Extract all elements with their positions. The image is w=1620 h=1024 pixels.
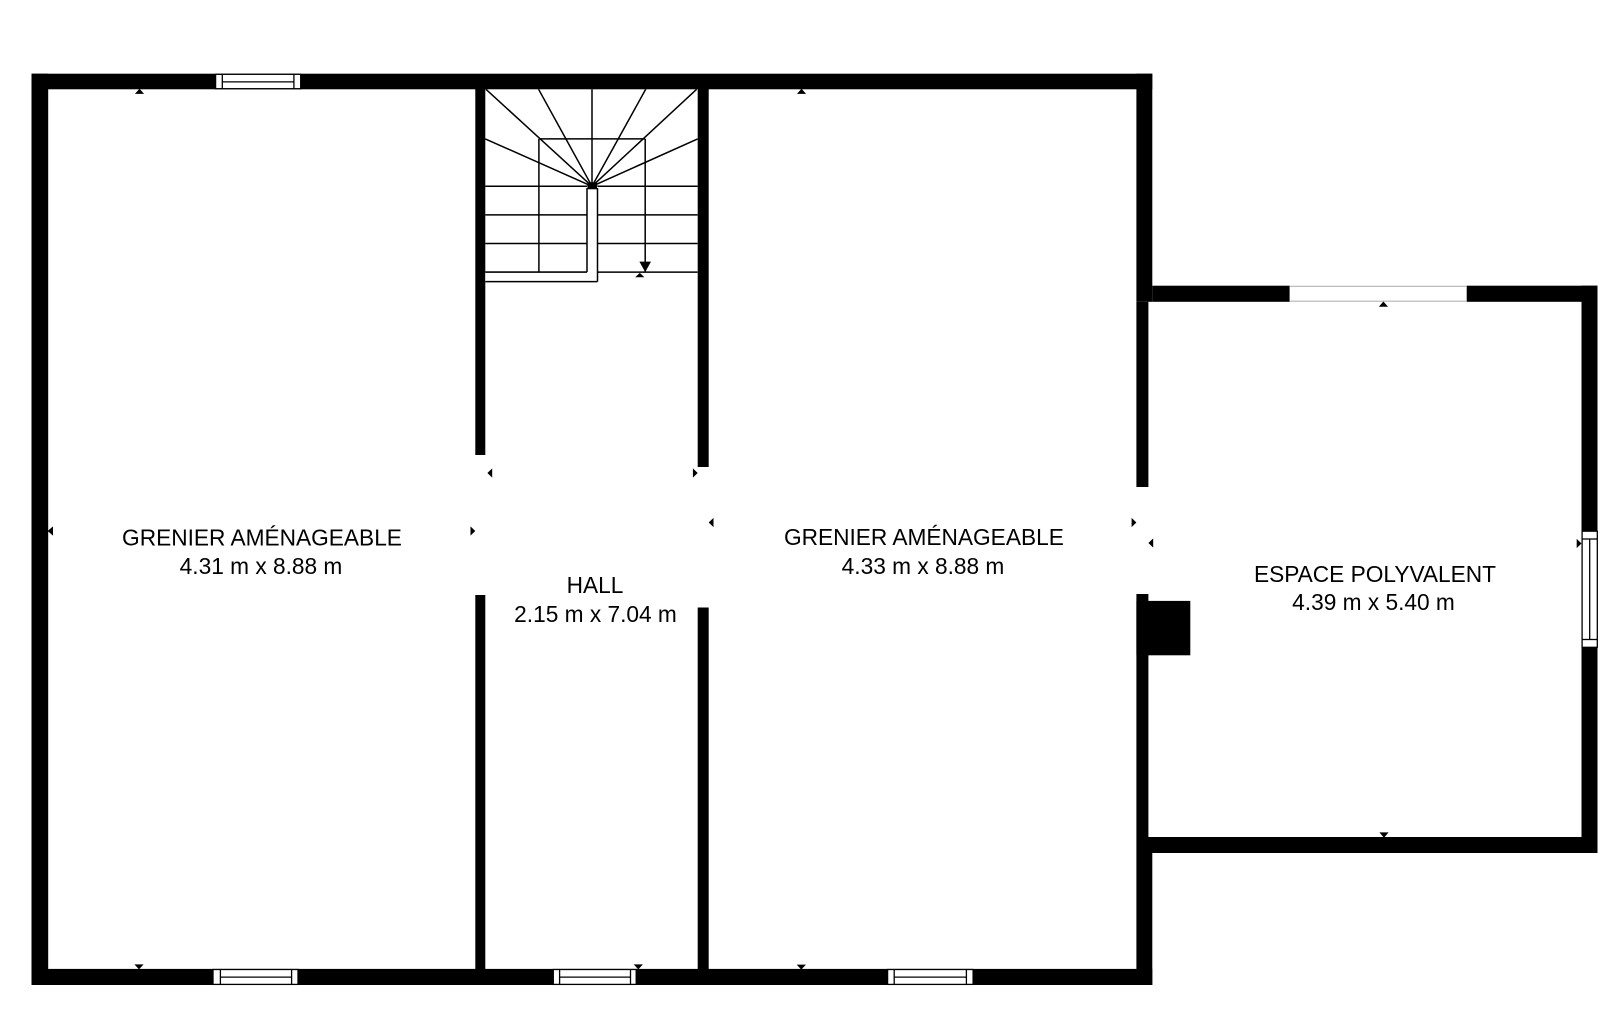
svg-text:ESPACE POLYVALENT: ESPACE POLYVALENT — [1254, 561, 1496, 587]
svg-text:HALL: HALL — [567, 572, 624, 598]
svg-text:4.39 m x 5.40 m: 4.39 m x 5.40 m — [1292, 589, 1455, 615]
svg-text:4.33 m x 8.88 m: 4.33 m x 8.88 m — [842, 553, 1005, 579]
svg-text:4.31 m x 8.88 m: 4.31 m x 8.88 m — [180, 553, 343, 579]
svg-text:2.15 m x 7.04 m: 2.15 m x 7.04 m — [514, 601, 677, 627]
svg-text:GRENIER AMÉNAGEABLE: GRENIER AMÉNAGEABLE — [784, 524, 1064, 550]
svg-text:GRENIER AMÉNAGEABLE: GRENIER AMÉNAGEABLE — [122, 524, 402, 550]
